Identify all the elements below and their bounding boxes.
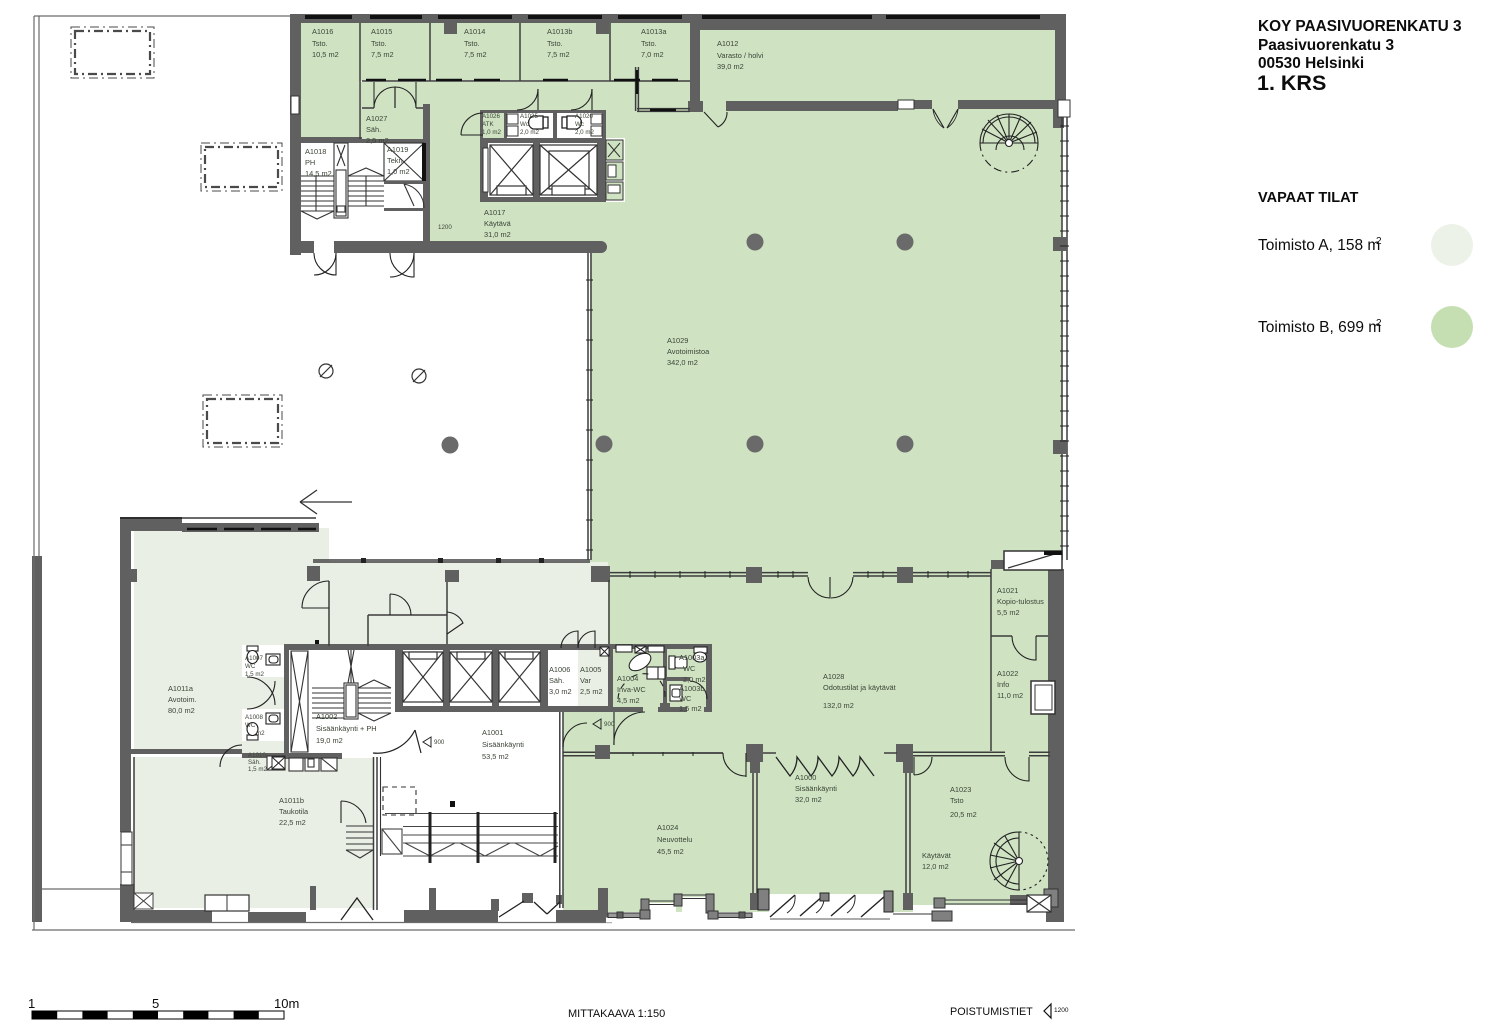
svg-text:Odotustilat ja käytävät: Odotustilat ja käytävät xyxy=(823,683,896,692)
svg-text:5,5 m2: 5,5 m2 xyxy=(997,608,1020,617)
svg-text:A1027: A1027 xyxy=(366,114,387,123)
svg-text:4,5 m2: 4,5 m2 xyxy=(617,696,640,705)
svg-text:1,0 m2: 1,0 m2 xyxy=(482,129,501,136)
svg-text:Paasivuorenkatu 3: Paasivuorenkatu 3 xyxy=(1258,37,1394,54)
svg-text:7,5 m2: 7,5 m2 xyxy=(464,50,487,59)
svg-text:19,0 m2: 19,0 m2 xyxy=(316,736,343,745)
svg-text:A1007: A1007 xyxy=(245,655,263,662)
svg-text:WC: WC xyxy=(679,694,692,703)
svg-text:2,5 m2: 2,5 m2 xyxy=(366,136,389,145)
svg-text:Tekn.: Tekn. xyxy=(387,156,405,165)
svg-text:A1023: A1023 xyxy=(950,785,971,794)
svg-text:VAPAAT TILAT: VAPAAT TILAT xyxy=(1258,190,1359,206)
svg-text:31,0 m2: 31,0 m2 xyxy=(484,230,511,239)
svg-text:A1006: A1006 xyxy=(549,665,570,674)
svg-text:1,5 m2: 1,5 m2 xyxy=(248,766,267,773)
svg-text:Tsto: Tsto xyxy=(950,796,964,805)
svg-text:Tsto.: Tsto. xyxy=(641,39,657,48)
svg-text:Info: Info xyxy=(997,680,1009,689)
svg-text:A1028: A1028 xyxy=(823,672,844,681)
svg-text:A1002: A1002 xyxy=(316,712,337,721)
svg-text:Toimisto A, 158 m: Toimisto A, 158 m xyxy=(1258,237,1380,254)
svg-text:A1013a: A1013a xyxy=(641,27,667,36)
svg-text:A1017: A1017 xyxy=(484,208,505,217)
svg-text:A1003b: A1003b xyxy=(679,684,704,693)
svg-text:MITTAKAAVA 1:150: MITTAKAAVA 1:150 xyxy=(568,1008,665,1020)
svg-text:Wc: Wc xyxy=(575,121,584,128)
svg-text:Tsto.: Tsto. xyxy=(464,39,480,48)
svg-text:A1003a: A1003a xyxy=(679,653,705,662)
svg-text:1: 1 xyxy=(28,996,35,1011)
svg-text:A1021: A1021 xyxy=(997,586,1018,595)
svg-text:53,5 m2: 53,5 m2 xyxy=(482,752,509,761)
svg-text:20,5 m2: 20,5 m2 xyxy=(950,810,977,819)
svg-text:Säh.: Säh. xyxy=(366,125,381,134)
svg-text:Inva-WC: Inva-WC xyxy=(617,685,646,694)
svg-text:Sisäänkäynti: Sisäänkäynti xyxy=(482,740,524,749)
svg-text:A1008: A1008 xyxy=(245,714,263,721)
svg-text:80,0 m2: 80,0 m2 xyxy=(168,706,195,715)
svg-text:Avotoimistoa: Avotoimistoa xyxy=(667,347,710,356)
svg-text:A1011a: A1011a xyxy=(168,684,194,693)
svg-text:Toimisto B, 699 m: Toimisto B, 699 m xyxy=(1258,319,1381,336)
svg-text:2,0 m2: 2,0 m2 xyxy=(520,129,539,136)
svg-text:ATK: ATK xyxy=(482,121,494,128)
svg-text:7,5 m2: 7,5 m2 xyxy=(371,50,394,59)
svg-text:A1013b: A1013b xyxy=(547,27,572,36)
svg-text:1200: 1200 xyxy=(1054,1007,1069,1014)
svg-text:132,0 m2: 132,0 m2 xyxy=(823,701,854,710)
svg-text:1,5 m2: 1,5 m2 xyxy=(245,671,264,678)
svg-text:12,0 m2: 12,0 m2 xyxy=(922,862,949,871)
svg-text:1. KRS: 1. KRS xyxy=(1257,71,1326,95)
svg-text:WC: WC xyxy=(245,663,256,670)
svg-text:3,0 m2: 3,0 m2 xyxy=(549,687,572,696)
svg-text:32,0 m2: 32,0 m2 xyxy=(795,795,822,804)
svg-text:1,0 m2: 1,0 m2 xyxy=(387,167,410,176)
svg-text:A1005: A1005 xyxy=(580,665,601,674)
svg-text:342,0 m2: 342,0 m2 xyxy=(667,358,698,367)
svg-text:Neuvottelu: Neuvottelu xyxy=(657,835,692,844)
svg-text:A1010: A1010 xyxy=(248,752,266,759)
svg-text:POISTUMISTIET: POISTUMISTIET xyxy=(950,1006,1033,1018)
svg-text:2,5 m2: 2,5 m2 xyxy=(580,687,603,696)
svg-text:Käytävät: Käytävät xyxy=(922,851,951,860)
svg-text:Tsto.: Tsto. xyxy=(371,39,387,48)
svg-text:Tsto.: Tsto. xyxy=(312,39,328,48)
svg-text:2: 2 xyxy=(1376,318,1382,329)
svg-text:Säh.: Säh. xyxy=(248,759,261,766)
svg-text:A1012: A1012 xyxy=(717,39,738,48)
svg-text:A1029: A1029 xyxy=(667,336,688,345)
svg-text:1,5 m2: 1,5 m2 xyxy=(679,704,702,713)
svg-text:A1024: A1024 xyxy=(657,823,678,832)
svg-text:A1019: A1019 xyxy=(387,145,408,154)
svg-text:Wc: Wc xyxy=(520,121,529,128)
svg-text:Käytävä: Käytävä xyxy=(484,219,512,228)
svg-text:Sisäänkäynti + PH: Sisäänkäynti + PH xyxy=(316,724,377,733)
svg-text:Varasto / holvi: Varasto / holvi xyxy=(717,51,764,60)
svg-text:A1025: A1025 xyxy=(520,113,538,120)
svg-text:10,5 m2: 10,5 m2 xyxy=(312,50,339,59)
svg-text:Säh.: Säh. xyxy=(549,676,564,685)
svg-text:A1011b: A1011b xyxy=(279,796,304,805)
svg-text:KOY PAASIVUORENKATU 3: KOY PAASIVUORENKATU 3 xyxy=(1258,18,1462,35)
svg-text:2: 2 xyxy=(1376,236,1382,247)
svg-text:11,0 m2: 11,0 m2 xyxy=(997,691,1023,700)
svg-text:A1016: A1016 xyxy=(312,27,333,36)
svg-text:m2: m2 xyxy=(256,730,265,737)
svg-text:39,0 m2: 39,0 m2 xyxy=(717,62,744,71)
svg-text:A1022: A1022 xyxy=(997,669,1018,678)
svg-text:Tsto.: Tsto. xyxy=(547,39,563,48)
svg-text:A1001: A1001 xyxy=(482,728,503,737)
svg-text:22,5 m2: 22,5 m2 xyxy=(279,818,306,827)
svg-text:A1004: A1004 xyxy=(617,674,638,683)
svg-text:PH: PH xyxy=(305,158,315,167)
svg-text:10m: 10m xyxy=(274,996,299,1011)
svg-text:Taukotila: Taukotila xyxy=(279,807,309,816)
svg-text:A1015: A1015 xyxy=(371,27,392,36)
svg-text:2,0 m2: 2,0 m2 xyxy=(575,129,594,136)
svg-text:7,0 m2: 7,0 m2 xyxy=(641,50,664,59)
svg-text:A1026: A1026 xyxy=(482,113,500,120)
svg-text:5: 5 xyxy=(152,996,159,1011)
svg-text:Var: Var xyxy=(580,676,591,685)
svg-text:Kopio-tulostus: Kopio-tulostus xyxy=(997,597,1044,606)
svg-text:WC: WC xyxy=(245,722,256,729)
svg-text:2,0 m2: 2,0 m2 xyxy=(683,675,706,684)
svg-text:A1020: A1020 xyxy=(575,113,593,120)
svg-text:1200: 1200 xyxy=(438,224,452,231)
svg-text:Avotoim.: Avotoim. xyxy=(168,695,197,704)
svg-text:WC: WC xyxy=(683,664,696,673)
svg-text:900: 900 xyxy=(604,721,615,728)
svg-text:14,5 m2: 14,5 m2 xyxy=(305,169,332,178)
svg-text:A1000: A1000 xyxy=(795,773,816,782)
svg-text:A1018: A1018 xyxy=(305,147,326,156)
svg-text:Sisäänkäynti: Sisäänkäynti xyxy=(795,784,837,793)
svg-text:A1014: A1014 xyxy=(464,27,485,36)
svg-text:900: 900 xyxy=(434,739,445,746)
svg-text:45,5 m2: 45,5 m2 xyxy=(657,847,684,856)
svg-text:7,5 m2: 7,5 m2 xyxy=(547,50,570,59)
svg-text:00530 Helsinki: 00530 Helsinki xyxy=(1258,55,1364,72)
